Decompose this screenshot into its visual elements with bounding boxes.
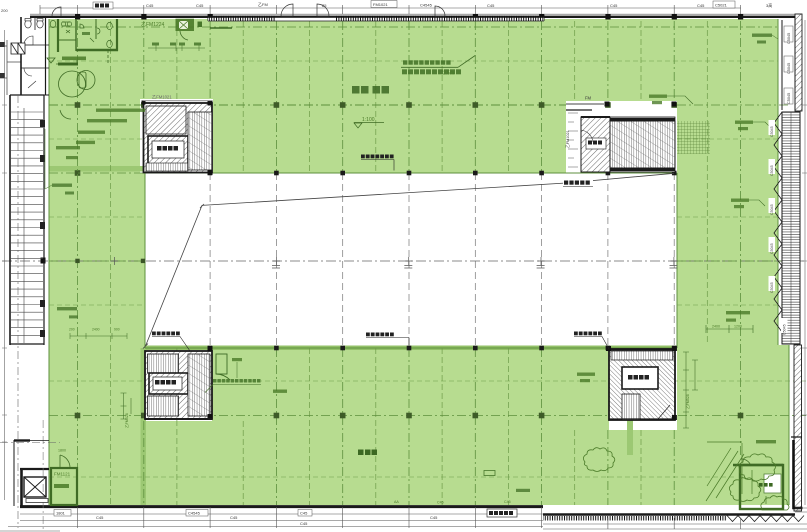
svg-text:2400: 2400 xyxy=(92,328,100,332)
svg-text:C45: C45 xyxy=(96,515,104,520)
svg-text:FM1021: FM1021 xyxy=(373,2,388,7)
svg-text:C45: C45 xyxy=(504,500,511,504)
svg-text:C5045: C5045 xyxy=(770,282,774,293)
svg-text:FM: FM xyxy=(585,96,592,101)
svg-text:乙FM: 乙FM xyxy=(258,1,268,7)
svg-text:C45: C45 xyxy=(437,501,444,505)
svg-text:FM1121: FM1121 xyxy=(54,472,71,477)
svg-text:C5045: C5045 xyxy=(770,126,774,137)
svg-text:C4545: C4545 xyxy=(420,3,433,8)
svg-text:C45: C45 xyxy=(430,515,438,520)
svg-text:C5045: C5045 xyxy=(787,93,791,104)
svg-text:C45: C45 xyxy=(146,3,154,8)
svg-text:C4545: C4545 xyxy=(188,511,201,516)
svg-text:C45: C45 xyxy=(196,3,204,8)
svg-text:2.5m: 2.5m xyxy=(443,71,454,77)
svg-text:C5045: C5045 xyxy=(770,165,774,176)
svg-text:1801: 1801 xyxy=(56,511,66,516)
svg-text:3高: 3高 xyxy=(766,2,772,8)
svg-text:乙FM528: 乙FM528 xyxy=(124,413,129,428)
svg-text:乙FM1224: 乙FM1224 xyxy=(141,21,165,28)
svg-text:C5045: C5045 xyxy=(787,63,791,74)
svg-text:200: 200 xyxy=(69,328,75,332)
svg-text:200: 200 xyxy=(1,8,8,13)
svg-text:C5045: C5045 xyxy=(787,33,791,44)
svg-text:1:100: 1:100 xyxy=(362,117,375,123)
svg-text:乙FM1021: 乙FM1021 xyxy=(152,94,172,100)
svg-text:C5045: C5045 xyxy=(783,324,787,335)
svg-text:1200: 1200 xyxy=(734,325,742,329)
svg-text:C45: C45 xyxy=(697,3,705,8)
svg-text:C5045: C5045 xyxy=(770,204,774,215)
svg-text:900: 900 xyxy=(114,328,120,332)
svg-text:乙FM528: 乙FM528 xyxy=(685,394,690,409)
svg-text:2400: 2400 xyxy=(712,325,720,329)
svg-text:C45: C45 xyxy=(300,521,308,526)
svg-text:C5021: C5021 xyxy=(715,3,728,8)
svg-text:C45: C45 xyxy=(610,3,618,8)
svg-text:C45: C45 xyxy=(230,515,238,520)
svg-text:1800: 1800 xyxy=(58,449,66,453)
svg-text:C5045: C5045 xyxy=(770,243,774,254)
svg-text:乙FM1021: 乙FM1021 xyxy=(565,130,570,148)
svg-text:C45: C45 xyxy=(487,3,495,8)
svg-text:AA: AA xyxy=(394,500,399,504)
svg-text:C45: C45 xyxy=(300,511,308,516)
